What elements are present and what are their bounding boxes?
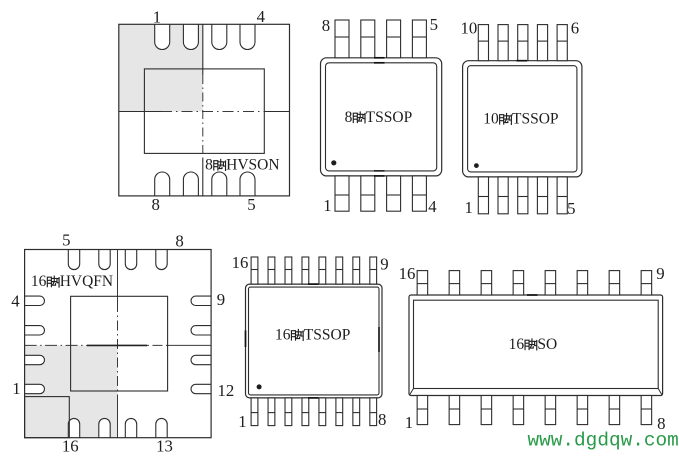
- svg-text:16: 16: [232, 253, 249, 272]
- svg-text:13: 13: [156, 436, 173, 455]
- svg-text:8: 8: [345, 109, 353, 126]
- svg-text:16: 16: [62, 436, 79, 455]
- svg-text:HVQFN: HVQFN: [60, 273, 113, 290]
- svg-text:5: 5: [62, 231, 70, 250]
- svg-text:5: 5: [247, 195, 255, 214]
- svg-text:9: 9: [656, 264, 664, 283]
- svg-text:TSSOP: TSSOP: [512, 111, 559, 128]
- svg-text:4: 4: [257, 7, 266, 26]
- svg-text:8: 8: [152, 195, 160, 214]
- svg-text:12: 12: [218, 381, 235, 400]
- svg-text:16: 16: [509, 336, 525, 353]
- svg-text:5: 5: [430, 15, 438, 34]
- svg-text:9: 9: [217, 290, 225, 309]
- svg-text:4: 4: [428, 197, 437, 216]
- svg-text:4: 4: [11, 292, 20, 311]
- svg-text:TSSOP: TSSOP: [366, 109, 413, 126]
- svg-text:5: 5: [567, 199, 575, 218]
- svg-text:TSSOP: TSSOP: [304, 327, 351, 344]
- svg-text:8: 8: [175, 232, 183, 251]
- svg-text:1: 1: [238, 412, 246, 431]
- svg-text:8: 8: [322, 16, 330, 35]
- svg-text:1: 1: [323, 196, 331, 215]
- svg-text:16: 16: [275, 327, 291, 344]
- svg-text:10: 10: [483, 111, 499, 128]
- svg-text:SO: SO: [537, 336, 557, 353]
- svg-text:www.dgdqw.com: www.dgdqw.com: [528, 429, 679, 451]
- svg-text:16: 16: [399, 264, 416, 283]
- svg-text:1: 1: [12, 379, 20, 398]
- svg-text:9: 9: [380, 254, 388, 273]
- svg-text:8: 8: [378, 410, 386, 429]
- svg-text:6: 6: [571, 19, 579, 38]
- svg-text:8: 8: [205, 157, 213, 174]
- svg-text:1: 1: [465, 198, 473, 217]
- svg-text:16: 16: [31, 273, 47, 290]
- svg-text:1: 1: [153, 8, 161, 27]
- svg-text:10: 10: [461, 19, 478, 38]
- svg-text:HVSON: HVSON: [226, 157, 279, 174]
- svg-text:1: 1: [405, 413, 413, 432]
